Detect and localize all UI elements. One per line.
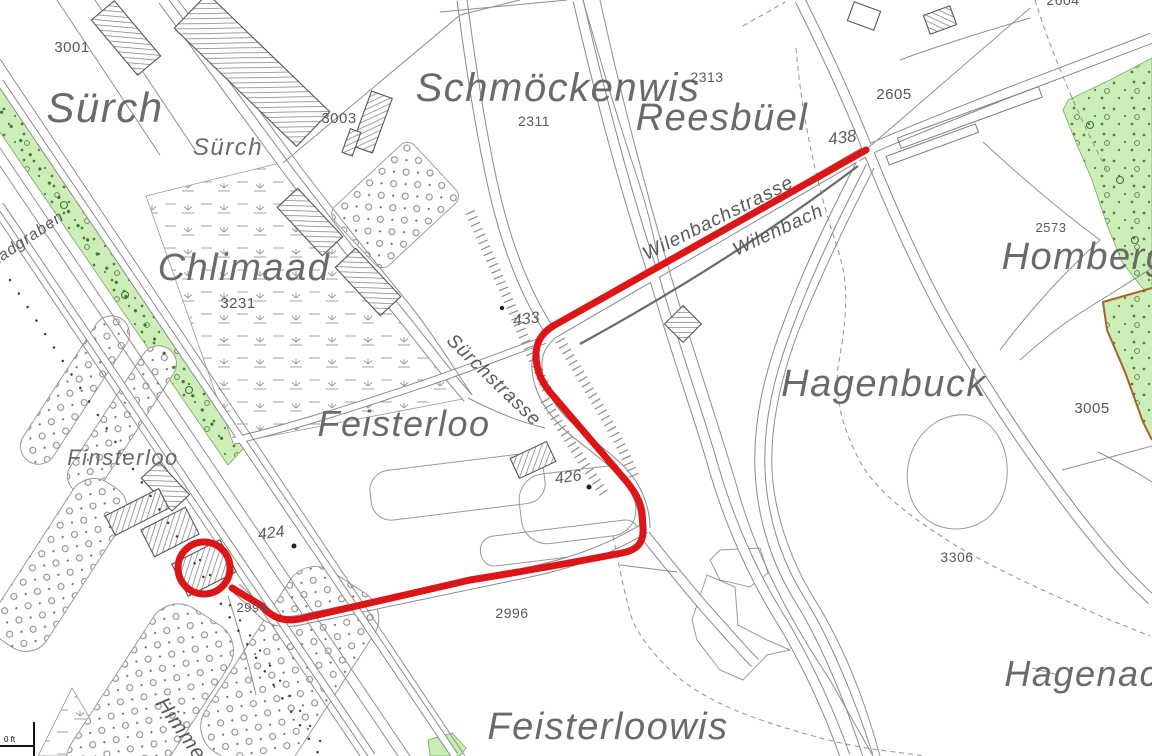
- label-place-suerch: Sürch: [46, 84, 163, 131]
- label-parcel-3001: 3001: [54, 39, 89, 56]
- label-place-feisterloo: Feisterloo: [317, 403, 490, 444]
- label-place-hagenbuck: Hagenbuck: [781, 363, 987, 405]
- label-place-homberg: Homberg: [1002, 236, 1152, 278]
- scale-label: 0 ft: [4, 735, 16, 744]
- label-place-feisterloowis: Feisterloowis: [487, 706, 728, 748]
- label-parcel-2311: 2311: [518, 113, 550, 129]
- label-elev-438: 438: [827, 126, 858, 149]
- label-place-hagenacher: Hagenacher: [1004, 653, 1152, 694]
- label-place-reesbueel: Reesbüel: [636, 97, 809, 139]
- label-parcel-2573: 2573: [1036, 220, 1067, 235]
- label-parcel-2994: 2994: [237, 600, 268, 615]
- label-parcel-2996: 2996: [495, 605, 528, 621]
- map-svg: 3001 Sürch Sürch 3003 Schmöckenwis 2311 …: [0, 0, 1152, 756]
- label-place-finsterloo: Finsterloo: [67, 445, 179, 470]
- label-parcel-3005: 3005: [1074, 400, 1109, 417]
- label-parcel-3003: 3003: [321, 110, 356, 127]
- map-canvas[interactable]: 3001 Sürch Sürch 3003 Schmöckenwis 2311 …: [0, 0, 1152, 756]
- label-parcel-2313: 2313: [690, 69, 723, 85]
- label-parcel-2604: 2604: [1046, 0, 1079, 8]
- label-place-chlimaad: Chlimaad: [158, 247, 331, 289]
- label-parcel-2605: 2605: [876, 86, 911, 103]
- label-parcel-3306: 3306: [940, 549, 973, 565]
- label-parcel-3231: 3231: [220, 295, 255, 312]
- label-road-suerch: Sürch: [193, 134, 263, 161]
